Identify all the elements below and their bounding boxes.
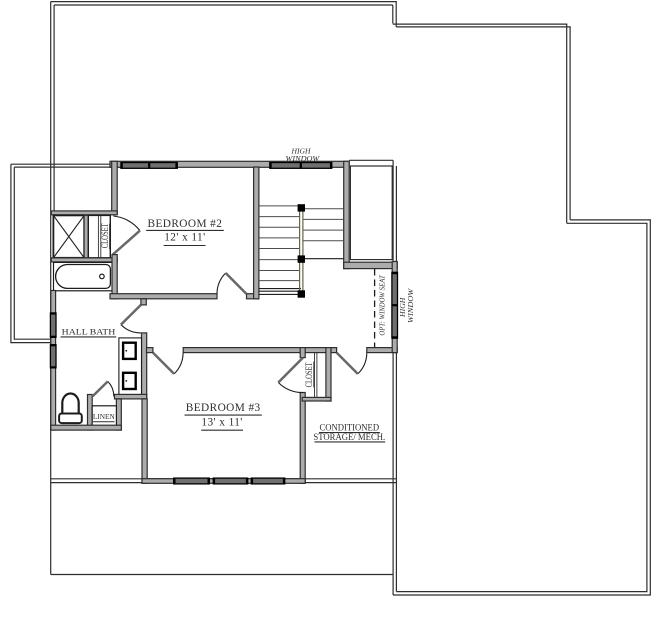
svg-text:OPT: WINDOW SEAT: OPT: WINDOW SEAT xyxy=(380,274,387,335)
svg-text:12' x 11': 12' x 11' xyxy=(164,232,205,244)
svg-text:BEDROOM #2: BEDROOM #2 xyxy=(147,218,222,230)
svg-text:HIGH: HIGH xyxy=(290,149,311,156)
svg-text:HALL BATH: HALL BATH xyxy=(62,326,116,336)
svg-text:STORAGE/ MECH.: STORAGE/ MECH. xyxy=(313,432,385,442)
svg-text:WINDOW: WINDOW xyxy=(286,156,321,163)
svg-text:HIGH: HIGH xyxy=(400,296,407,318)
svg-text:LINEN: LINEN xyxy=(93,412,116,421)
svg-text:WINDOW: WINDOW xyxy=(408,287,415,323)
svg-text:BEDROOM #3: BEDROOM #3 xyxy=(186,402,261,414)
svg-text:13' x 11': 13' x 11' xyxy=(201,416,242,428)
